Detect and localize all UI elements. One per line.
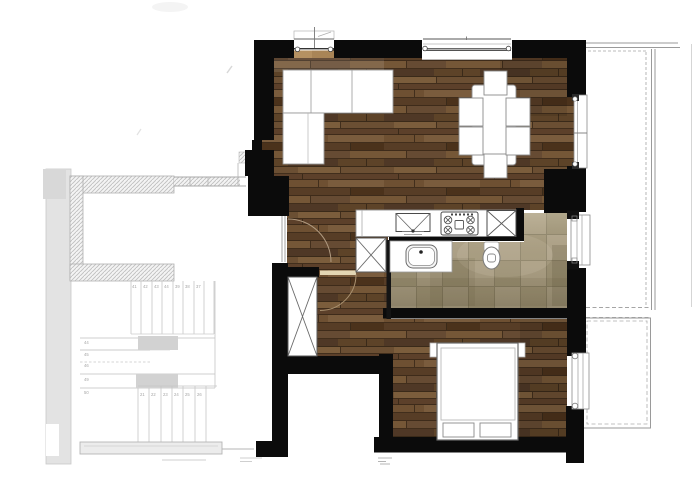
svg-text:22: 22 <box>151 392 156 397</box>
svg-text:45: 45 <box>84 352 89 357</box>
svg-text:38: 38 <box>185 284 190 289</box>
svg-text:46: 46 <box>84 363 89 368</box>
svg-text:44: 44 <box>164 284 169 289</box>
svg-text:50: 50 <box>84 390 89 395</box>
svg-text:21: 21 <box>140 392 145 397</box>
svg-text:41: 41 <box>132 284 137 289</box>
svg-text:24: 24 <box>174 392 179 397</box>
svg-text:44: 44 <box>84 340 89 345</box>
svg-text:23: 23 <box>163 392 168 397</box>
svg-text:39: 39 <box>175 284 180 289</box>
svg-text:37: 37 <box>196 284 201 289</box>
svg-text:49: 49 <box>84 377 89 382</box>
svg-text:43: 43 <box>154 284 159 289</box>
svg-text:26: 26 <box>197 392 202 397</box>
svg-text:42: 42 <box>143 284 148 289</box>
svg-text:25: 25 <box>185 392 190 397</box>
